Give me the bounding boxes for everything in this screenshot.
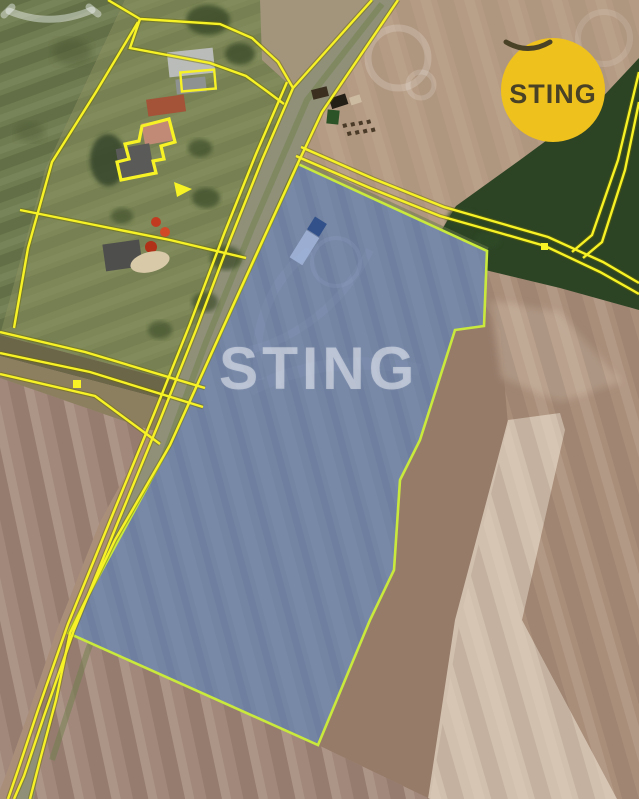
sting-badge-text: STING	[509, 81, 597, 108]
sting-logo-badge: STING	[501, 38, 605, 142]
boundary-marker-2	[541, 243, 548, 250]
boundary-marker-1	[73, 380, 81, 388]
smile-icon	[501, 38, 555, 56]
sting-watermark-text: STING	[219, 339, 418, 399]
smile-icon	[0, 0, 104, 30]
aerial-map: STING STING	[0, 0, 639, 799]
